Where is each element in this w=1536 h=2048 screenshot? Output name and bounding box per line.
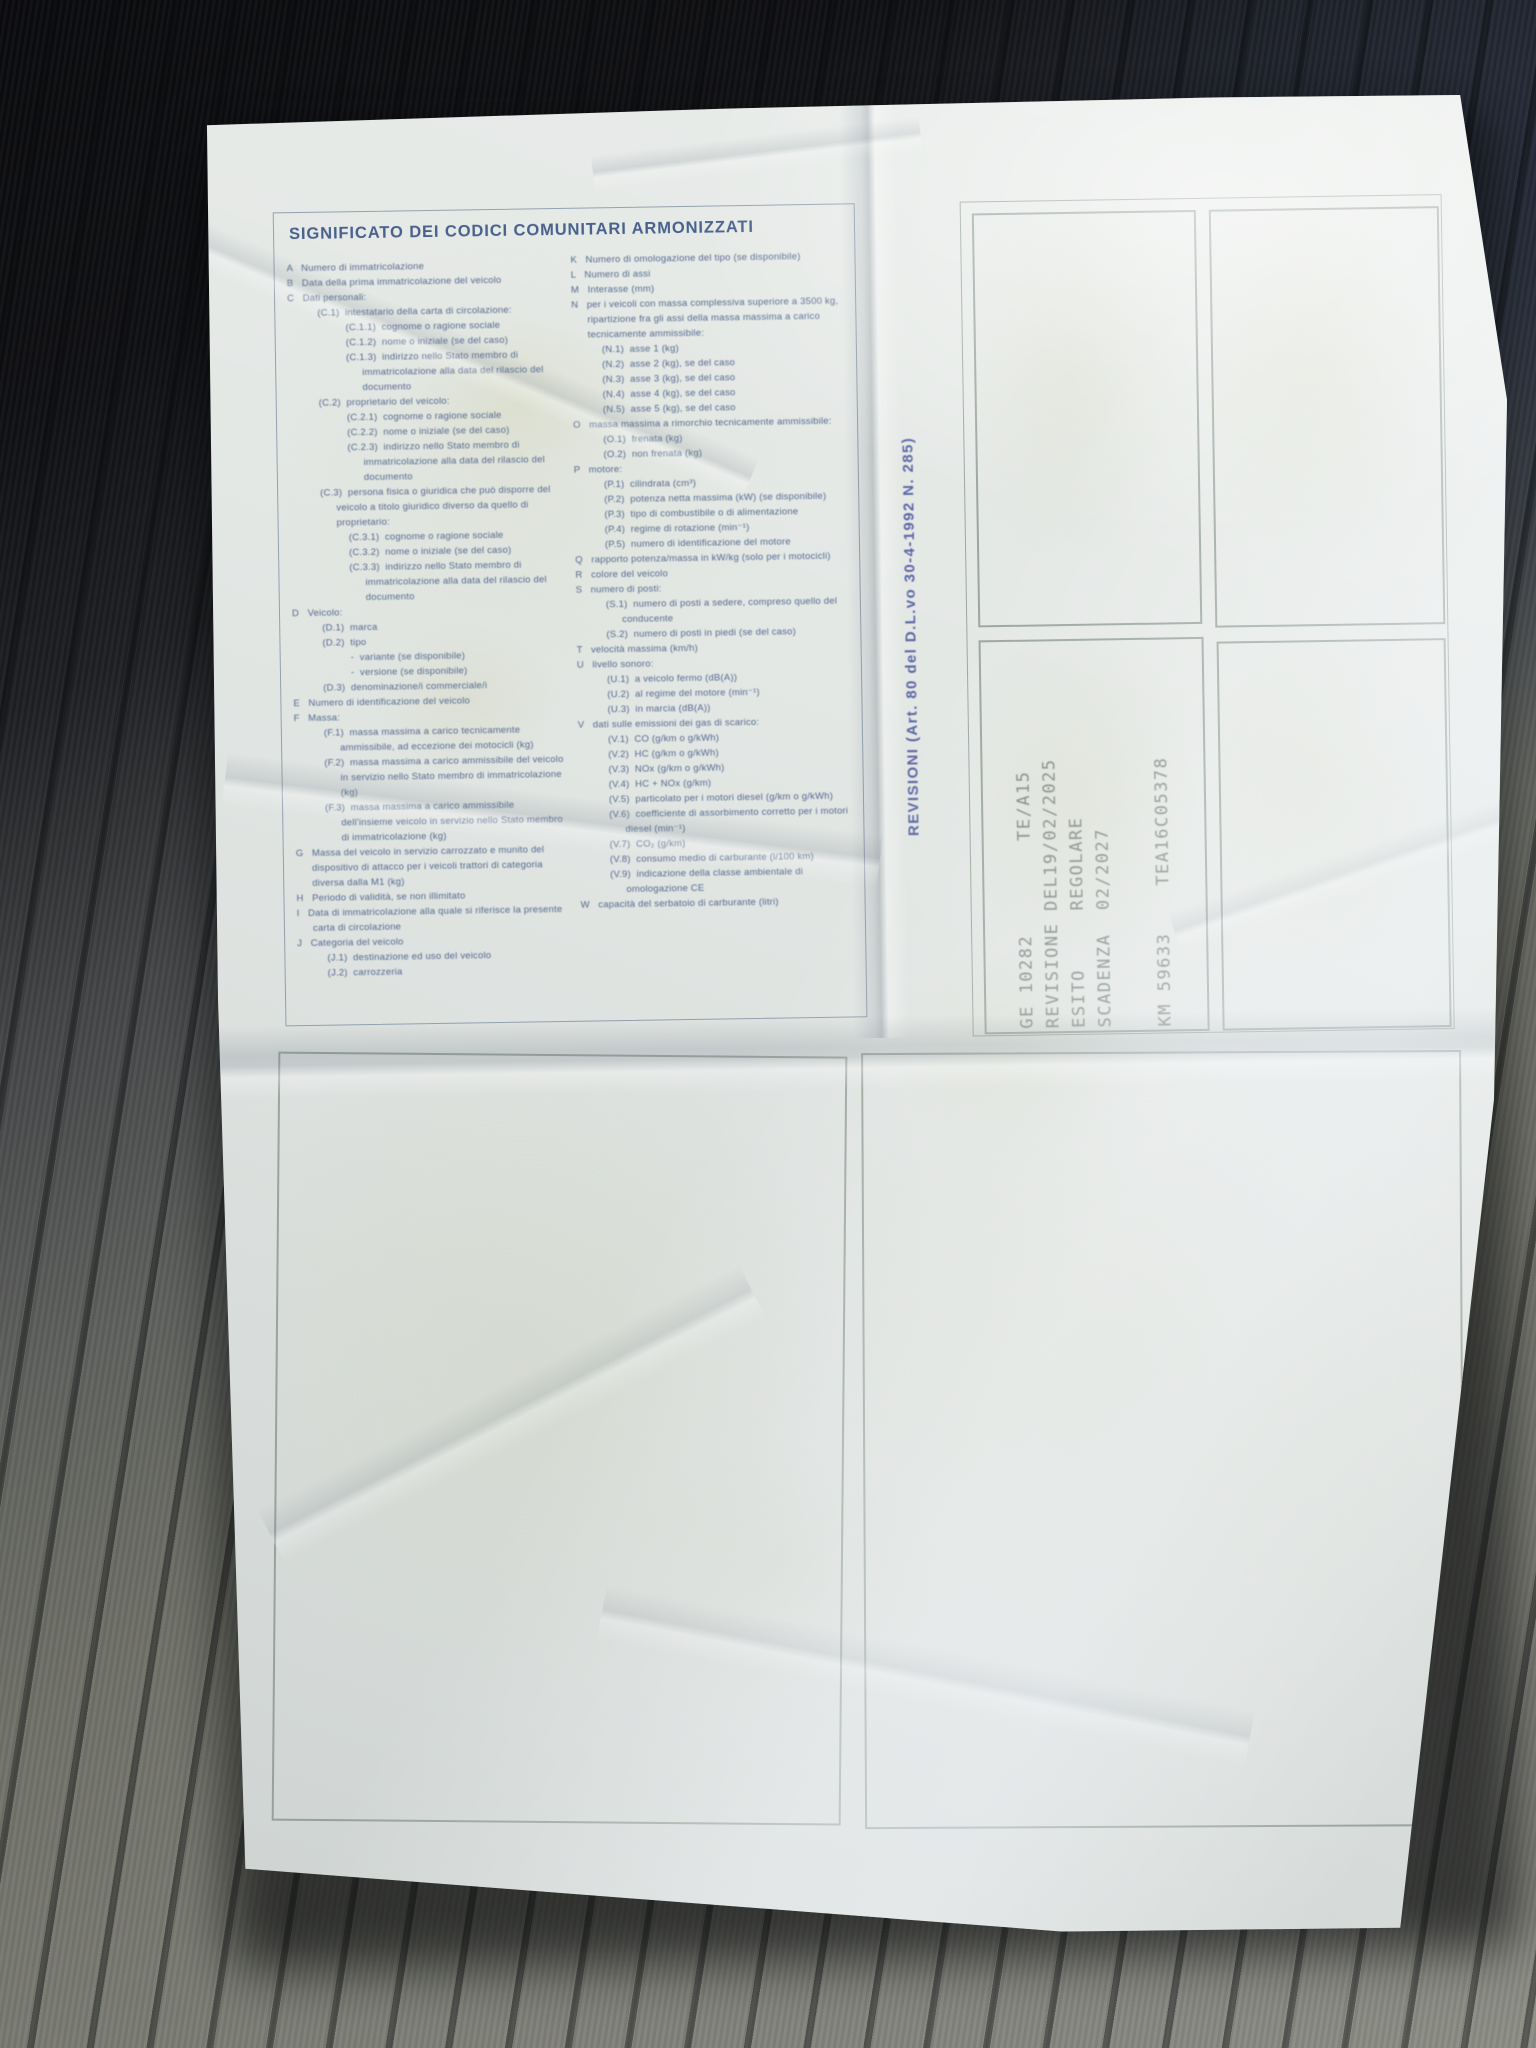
code-line: W capacità del serbatoio di carburante (…	[581, 893, 854, 912]
code-line: (C.3.3) indirizzo nello Stato membro di …	[349, 557, 565, 605]
code-line: I Data di immatricolazione alla quale si…	[297, 902, 570, 936]
code-line: (F.3) massa massima a carico ammissibile…	[325, 797, 569, 846]
registration-document-page: SIGNIFICATO DEI CODICI COMUNITARI ARMONI…	[205, 92, 1507, 1937]
revision-box-2	[1209, 206, 1446, 628]
photo-scene: SIGNIFICATO DEI CODICI COMUNITARI ARMONI…	[0, 0, 1536, 2048]
revision-box-1	[972, 210, 1202, 627]
code-line: (V.9) indicazione della classe ambiental…	[610, 863, 853, 897]
codes-column-left: A Numero di immatricolazioneB Data della…	[286, 257, 570, 981]
crease-line	[591, 116, 923, 191]
code-line: (S.1) numero di posti a sedere, compreso…	[606, 593, 849, 627]
revisioni-section-label: REVISIONI (Art. 80 del D.L.vo 30-4-1992 …	[898, 366, 934, 906]
inspection-stamp: GE 10282 TE/A15REVISIONE DEL19/02/2025ES…	[1009, 646, 1201, 1029]
code-line: (J.2) carrozzeria	[328, 962, 571, 981]
code-line: (F.2) massa massima a carico ammissibile…	[324, 752, 568, 801]
code-line: (V.6) coefficiente di assorbimento corre…	[609, 803, 852, 837]
codes-section: SIGNIFICATO DEI CODICI COMUNITARI ARMONI…	[273, 203, 868, 1026]
code-line: (F.1) massa massima a carico tecnicament…	[324, 722, 567, 756]
codes-section-title: SIGNIFICATO DEI CODICI COMUNITARI ARMONI…	[289, 217, 841, 245]
code-line: (C.2.3) indirizzo nello Stato membro di …	[347, 437, 563, 485]
revision-box-4	[1217, 638, 1452, 1031]
empty-box-lower-left	[272, 1052, 848, 1826]
document-content: SIGNIFICATO DEI CODICI COMUNITARI ARMONI…	[191, 78, 1522, 1943]
code-line: (C.3) persona fisica o giuridica che può…	[320, 482, 564, 531]
codes-column-right: K Numero di omologazione del tipo (se di…	[570, 248, 853, 912]
stamp-line: KM 59633 TEA16C05378	[1147, 646, 1179, 1026]
code-line: N per i veicoli con massa complessiva su…	[571, 293, 845, 342]
empty-box-lower-right	[861, 1050, 1465, 1829]
code-line: (C.1.3) indirizzo nello Stato membro di …	[346, 347, 562, 395]
code-line: G Massa del veicolo in servizio carrozza…	[296, 842, 570, 891]
stamp-line: SCADENZA 02/2027	[1087, 647, 1119, 1027]
